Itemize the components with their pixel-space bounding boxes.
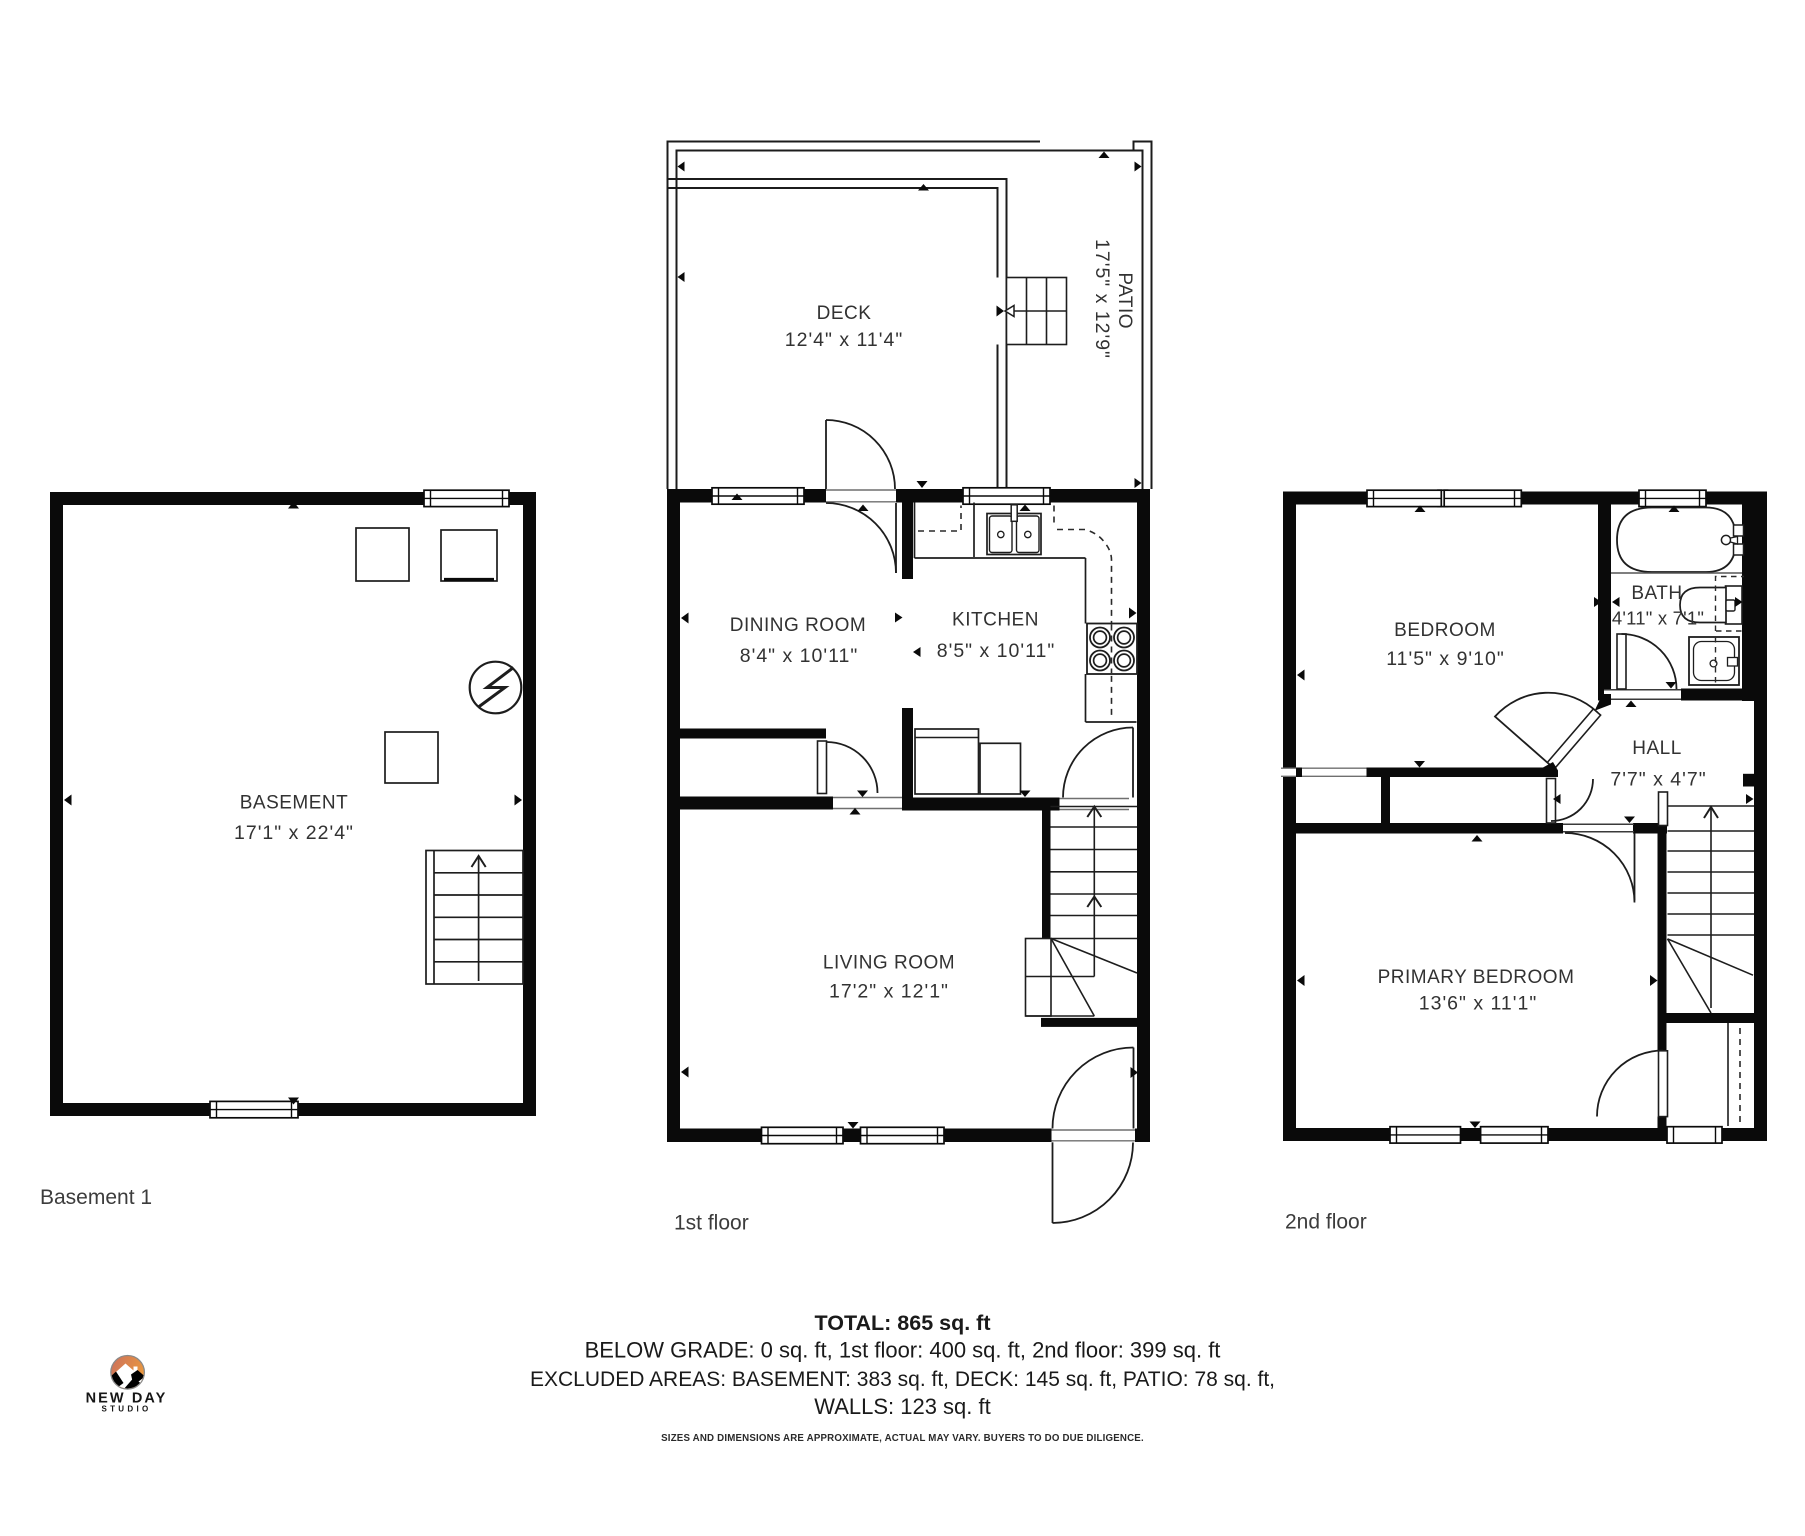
svg-text:1st floor: 1st floor (674, 1212, 749, 1235)
svg-text:HALL: HALL (1632, 738, 1682, 759)
svg-text:13'6" x 11'1": 13'6" x 11'1" (1419, 993, 1538, 1015)
svg-text:11'5" x 9'10": 11'5" x 9'10" (1386, 648, 1505, 670)
svg-text:Basement 1: Basement 1 (40, 1186, 152, 1209)
svg-text:2nd floor: 2nd floor (1285, 1211, 1367, 1234)
svg-text:PATIO: PATIO (1114, 272, 1135, 329)
svg-text:12'4" x 11'4": 12'4" x 11'4" (785, 329, 904, 351)
svg-text:PRIMARY BEDROOM: PRIMARY BEDROOM (1378, 967, 1575, 988)
svg-text:SIZES AND DIMENSIONS ARE APPRO: SIZES AND DIMENSIONS ARE APPROXIMATE, AC… (661, 1433, 1144, 1444)
svg-text:17'1" x 22'4": 17'1" x 22'4" (234, 822, 354, 844)
svg-text:DECK: DECK (817, 303, 872, 324)
svg-text:17'5" x 12'9": 17'5" x 12'9" (1091, 239, 1113, 359)
svg-text:BASEMENT: BASEMENT (240, 793, 349, 814)
svg-text:STUDIO: STUDIO (101, 1405, 151, 1414)
svg-text:BELOW GRADE: 0 sq. ft, 1st flo: BELOW GRADE: 0 sq. ft, 1st floor: 400 sq… (585, 1338, 1221, 1363)
svg-text:TOTAL: 865 sq. ft: TOTAL: 865 sq. ft (815, 1311, 991, 1335)
svg-text:BEDROOM: BEDROOM (1394, 620, 1496, 641)
svg-text:LIVING ROOM: LIVING ROOM (823, 953, 955, 974)
svg-text:BATH: BATH (1631, 583, 1682, 604)
svg-text:8'5" x 10'11": 8'5" x 10'11" (937, 640, 1056, 662)
svg-text:4'11" x 7'1": 4'11" x 7'1" (1612, 608, 1704, 629)
svg-text:WALLS: 123 sq. ft: WALLS: 123 sq. ft (814, 1394, 991, 1419)
svg-text:KITCHEN: KITCHEN (952, 610, 1039, 631)
svg-text:8'4" x 10'11": 8'4" x 10'11" (740, 645, 859, 667)
svg-text:17'2" x 12'1": 17'2" x 12'1" (829, 981, 949, 1003)
svg-text:DINING ROOM: DINING ROOM (730, 615, 866, 636)
svg-text:EXCLUDED AREAS: BASEMENT: 383: EXCLUDED AREAS: BASEMENT: 383 sq. ft, DE… (530, 1368, 1275, 1391)
svg-text:7'7" x 4'7": 7'7" x 4'7" (1610, 769, 1706, 791)
